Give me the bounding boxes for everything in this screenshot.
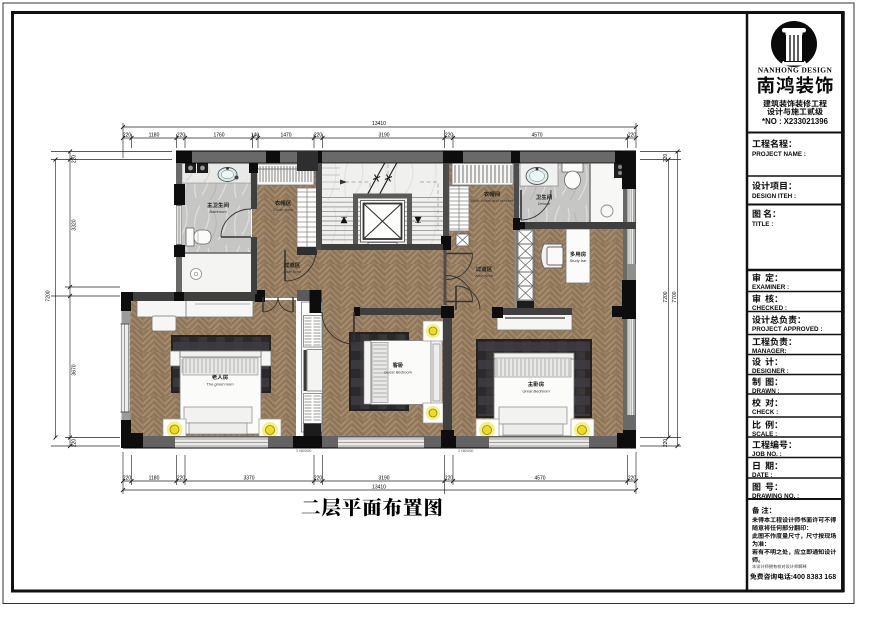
svg-text:220: 220	[123, 476, 132, 482]
svg-text:1180: 1180	[149, 476, 160, 482]
svg-text:DATE :: DATE :	[752, 472, 773, 479]
svg-text:220: 220	[445, 133, 454, 139]
svg-text:SCALE :: SCALE :	[752, 431, 777, 438]
svg-text:7200: 7200	[46, 290, 52, 301]
svg-text:Deluxe: Deluxe	[538, 201, 551, 206]
svg-text:·: ·	[592, 300, 593, 304]
svg-text:EXAMINER :: EXAMINER :	[752, 284, 789, 291]
svg-text:220: 220	[663, 439, 669, 448]
svg-text:220: 220	[445, 476, 454, 482]
svg-text:DRAWING NO. :: DRAWING NO. :	[752, 493, 799, 500]
svg-text:DRAWN :: DRAWN :	[752, 388, 780, 395]
svg-text:*NO : X233021396: *NO : X233021396	[762, 117, 829, 126]
svg-text:Aisle Area: Aisle Area	[474, 273, 494, 278]
svg-text:TITLE :: TITLE :	[752, 221, 773, 228]
svg-text:220: 220	[628, 476, 637, 482]
svg-text:13410: 13410	[372, 485, 386, 491]
svg-text:220: 220	[177, 133, 186, 139]
svg-text:220: 220	[628, 133, 637, 139]
svg-text:220: 220	[72, 155, 78, 164]
svg-text:The good room: The good room	[206, 382, 234, 387]
svg-text:220: 220	[314, 133, 323, 139]
svg-text:Guest Bedroom: Guest Bedroom	[384, 370, 413, 375]
svg-text:Bathroom: Bathroom	[209, 209, 227, 214]
svg-text:Walk closet and dresser: Walk closet and dresser	[471, 198, 514, 203]
svg-text:DESIGNER :: DESIGNER :	[752, 368, 789, 375]
svg-text:JOB NO. :: JOB NO. :	[752, 451, 782, 458]
svg-text:DESIGN ITEH :: DESIGN ITEH :	[752, 193, 796, 200]
svg-text:3 X600600: 3 X600600	[458, 449, 474, 453]
svg-text:4570: 4570	[531, 133, 542, 139]
svg-text:MANAGER:: MANAGER:	[752, 348, 787, 355]
svg-text:3320: 3320	[72, 219, 78, 230]
svg-text:140: 140	[251, 133, 260, 139]
svg-text:3190: 3190	[378, 133, 389, 139]
svg-text:220: 220	[314, 476, 323, 482]
svg-text:Aisle Area: Aisle Area	[282, 269, 302, 274]
svg-text:7700: 7700	[672, 291, 678, 302]
svg-text:220: 220	[663, 154, 669, 163]
svg-text:1470: 1470	[280, 133, 291, 139]
svg-text:CHECK :: CHECK :	[752, 409, 778, 416]
svg-text:3 X600600: 3 X600600	[296, 449, 312, 453]
svg-text:Study bar: Study bar	[569, 258, 587, 263]
svg-text:220: 220	[72, 439, 78, 448]
svg-text:PROJECT APPROVED :: PROJECT APPROVED :	[752, 326, 822, 333]
svg-text:1760: 1760	[213, 133, 224, 139]
svg-text:CHECKED :: CHECKED :	[752, 305, 787, 312]
svg-text:7200: 7200	[663, 291, 669, 302]
svg-text:PROJECT NAME :: PROJECT NAME :	[752, 151, 806, 158]
svg-text:13410: 13410	[372, 121, 386, 127]
svg-text:220: 220	[177, 476, 186, 482]
svg-text:3670: 3670	[72, 364, 78, 375]
svg-text:220: 220	[123, 133, 132, 139]
svg-text:4570: 4570	[534, 476, 545, 482]
svg-text:NANHONG DESIGN: NANHONG DESIGN	[758, 66, 833, 75]
svg-text:3190: 3190	[378, 476, 389, 482]
svg-text:1180: 1180	[149, 133, 160, 139]
svg-text:Cloak zone: Cloak zone	[273, 207, 294, 212]
svg-text:3370: 3370	[243, 476, 254, 482]
svg-text:Great Bedroom: Great Bedroom	[522, 389, 550, 394]
